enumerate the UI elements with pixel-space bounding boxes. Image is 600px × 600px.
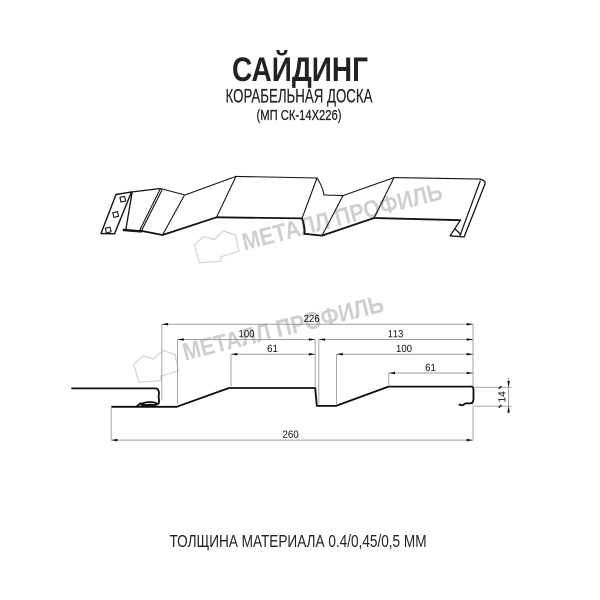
svg-text:КОРАБЕЛЬНАЯ ДОСКА: КОРАБЕЛЬНАЯ ДОСКА	[226, 85, 374, 107]
svg-text:МЕТАЛЛ ПРОФИЛЬ: МЕТАЛЛ ПРОФИЛЬ	[239, 177, 445, 255]
svg-text:ТОЛЩИНА МАТЕРИАЛА 0.4/0,45/0,5: ТОЛЩИНА МАТЕРИАЛА 0.4/0,45/0,5 ММ	[169, 532, 426, 551]
svg-text:САЙДИНГ: САЙДИНГ	[232, 49, 368, 88]
svg-text:(МП СК-14Х226): (МП СК-14Х226)	[257, 106, 342, 123]
